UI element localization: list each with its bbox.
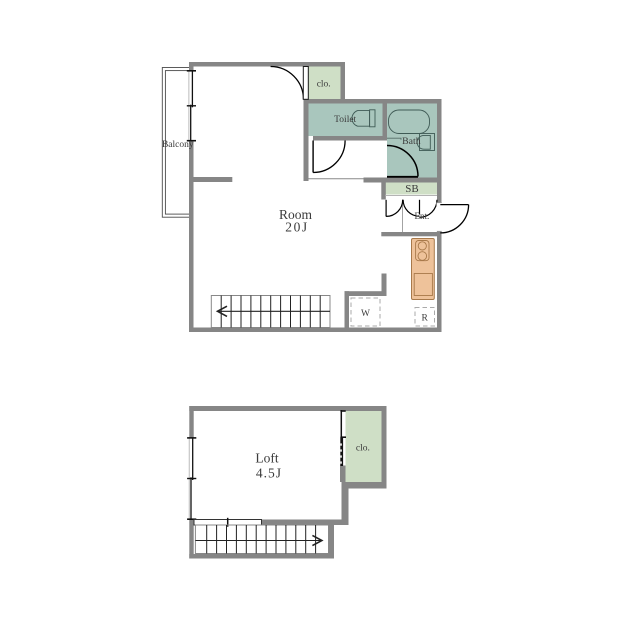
- svg-text:clo.: clo.: [356, 444, 370, 454]
- svg-text:20J: 20J: [285, 220, 309, 235]
- svg-text:Bath: Bath: [402, 136, 421, 147]
- svg-text:Toilet: Toilet: [334, 115, 356, 125]
- svg-text:W: W: [361, 309, 370, 319]
- svg-text:Balcony: Balcony: [162, 140, 194, 150]
- svg-text:4.5J: 4.5J: [256, 466, 282, 481]
- svg-text:Loft: Loft: [255, 451, 278, 466]
- svg-text:SB: SB: [405, 183, 418, 195]
- svg-text:Ent.: Ent.: [415, 211, 430, 221]
- svg-text:clo.: clo.: [317, 80, 331, 90]
- svg-text:R: R: [422, 313, 429, 323]
